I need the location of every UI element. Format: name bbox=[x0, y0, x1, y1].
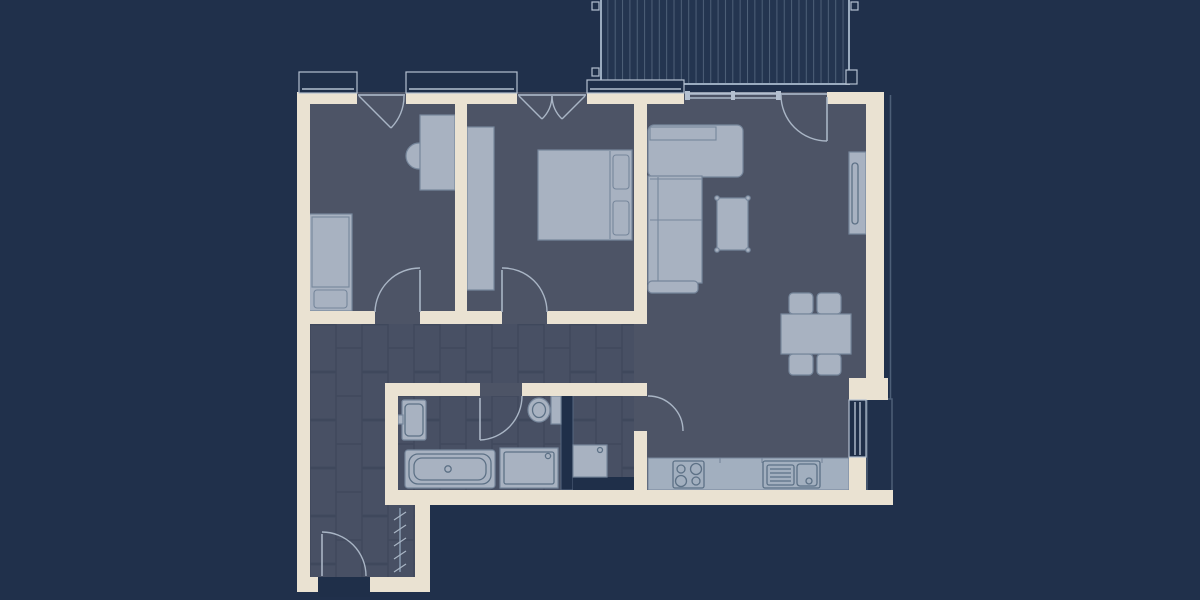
kitchen bbox=[648, 458, 849, 490]
wall-bottom-main bbox=[385, 490, 893, 505]
slider-block bbox=[685, 91, 690, 100]
toilet-tank bbox=[551, 396, 561, 424]
wall-utility-right bbox=[634, 431, 647, 492]
entrance-threshold bbox=[318, 577, 370, 597]
table-leg bbox=[715, 196, 719, 200]
slider-block bbox=[776, 91, 781, 100]
balcony-rail-clip bbox=[592, 68, 599, 76]
table-leg bbox=[715, 248, 719, 252]
wall-bedrooms-hall-1 bbox=[297, 311, 375, 324]
bathtub bbox=[405, 450, 495, 488]
table-leg bbox=[746, 248, 750, 252]
wall-bedrooms-hall-2 bbox=[420, 311, 502, 324]
dining-chair bbox=[817, 293, 841, 314]
desk bbox=[420, 115, 455, 190]
fixed-window-c bbox=[587, 80, 684, 93]
floor-plan-canvas bbox=[0, 0, 1200, 600]
sofa-chaise bbox=[648, 125, 743, 177]
wall-bath-top-2 bbox=[522, 383, 647, 396]
balcony bbox=[592, 0, 858, 85]
dining-chair bbox=[789, 293, 813, 314]
wall-bottom-vestibule-1 bbox=[297, 577, 318, 592]
balcony-post bbox=[846, 70, 857, 84]
wall-bath-left bbox=[385, 383, 398, 504]
slider-block bbox=[731, 91, 735, 100]
table-leg bbox=[746, 196, 750, 200]
balcony-rail-clip bbox=[851, 2, 858, 10]
sofa-armrest bbox=[648, 281, 698, 293]
wall-right-lower bbox=[849, 455, 866, 492]
balcony-deck bbox=[600, 0, 850, 85]
floor-plan bbox=[0, 0, 1200, 600]
double-bed bbox=[538, 150, 632, 240]
washbasin-tap bbox=[398, 415, 403, 424]
dining-chair bbox=[817, 354, 841, 375]
wall-vestibule-right bbox=[415, 504, 430, 592]
balcony-rail-clip bbox=[592, 2, 599, 10]
kitchen-window bbox=[849, 400, 866, 457]
sofa-seats bbox=[648, 176, 702, 283]
duct-shaft bbox=[561, 393, 573, 490]
corridor-floor bbox=[310, 383, 398, 504]
utility-room bbox=[573, 445, 607, 477]
wall-bedrooms-hall-3 bbox=[547, 311, 647, 324]
wall-right-upper bbox=[866, 92, 884, 380]
utility-counter bbox=[573, 477, 634, 490]
wall-bath-top-1 bbox=[385, 383, 480, 396]
hallway-floor bbox=[310, 324, 634, 383]
wall-left bbox=[297, 92, 310, 592]
dining-chair bbox=[789, 354, 813, 375]
wardrobe bbox=[467, 127, 494, 290]
coffee-table bbox=[717, 198, 748, 250]
dining-table bbox=[781, 314, 851, 354]
toilet-bowl bbox=[528, 398, 550, 422]
fixed-window-a bbox=[299, 72, 357, 93]
wall-bedroom-divider bbox=[455, 92, 467, 311]
wall-living-divider bbox=[634, 92, 647, 324]
wall-right-step bbox=[849, 378, 888, 400]
fixed-window-b bbox=[406, 72, 517, 93]
single-bed bbox=[309, 214, 352, 311]
